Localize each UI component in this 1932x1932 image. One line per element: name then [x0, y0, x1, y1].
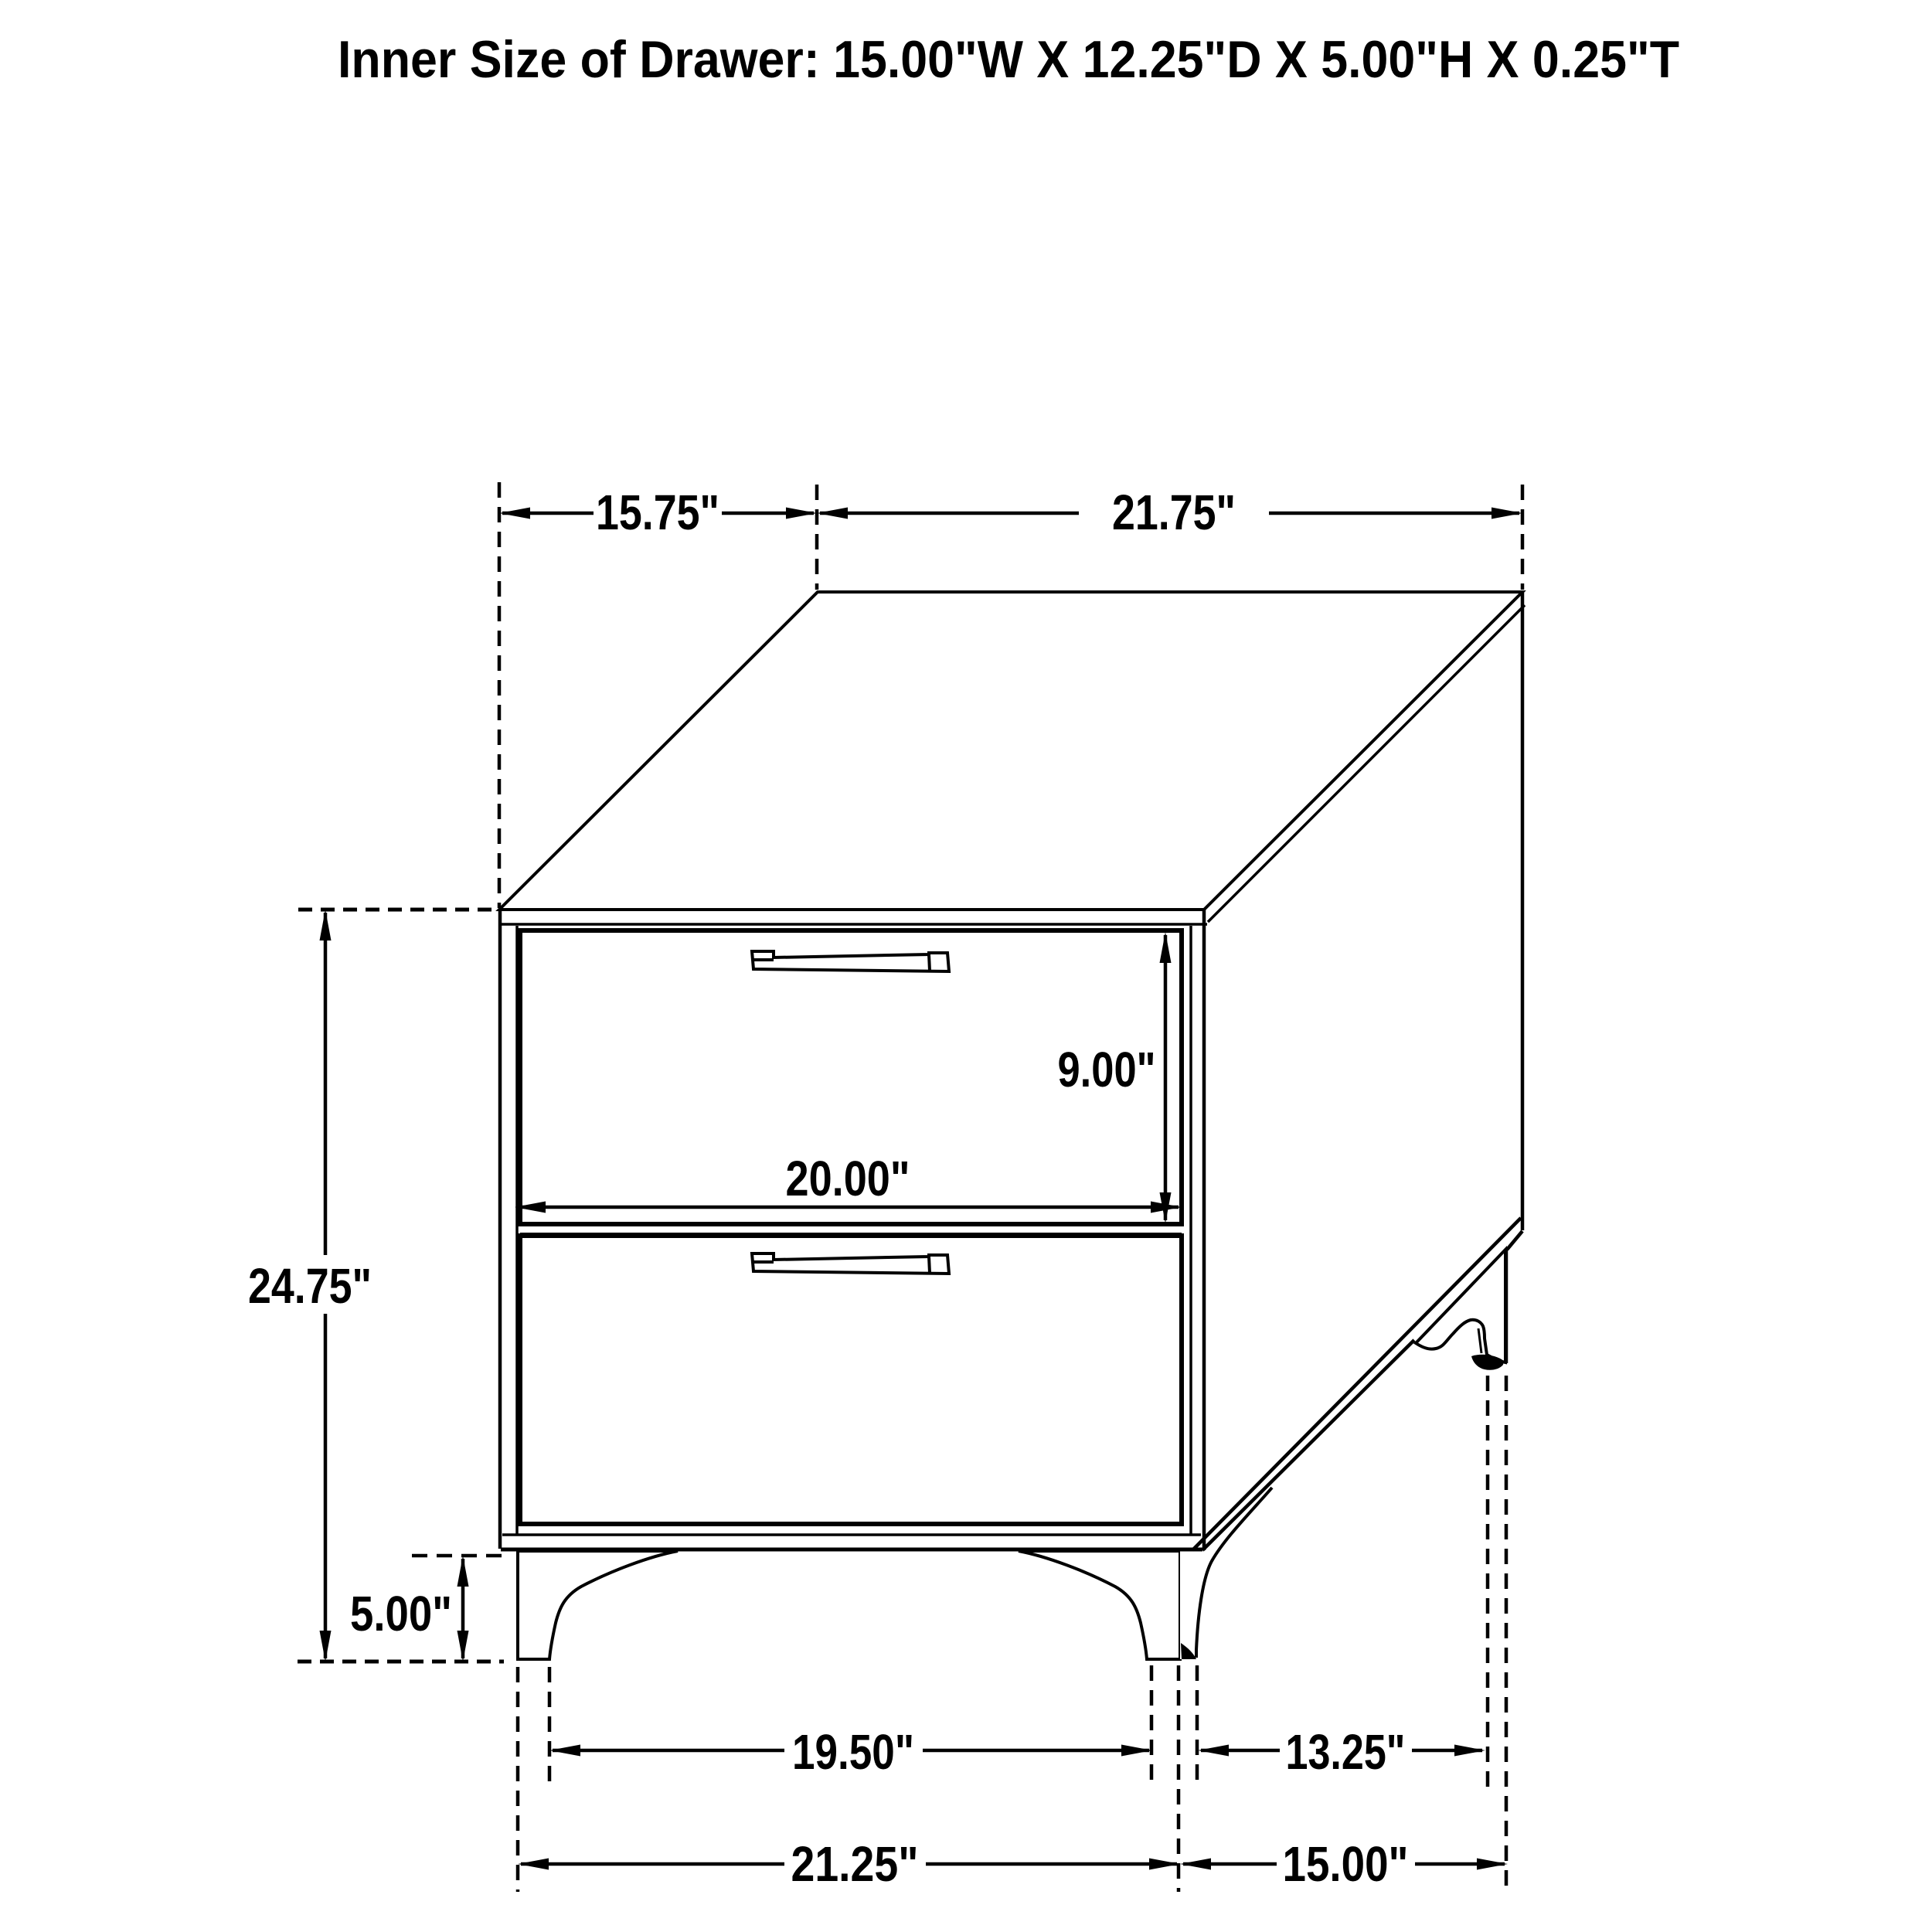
svg-text:21.75": 21.75" — [1112, 485, 1236, 540]
svg-text:21.25": 21.25" — [791, 1836, 919, 1892]
svg-text:Inner Size of Drawer: 15.00"W: Inner Size of Drawer: 15.00"W X 12.25"D … — [338, 30, 1679, 89]
svg-text:13.25": 13.25" — [1286, 1724, 1406, 1780]
svg-text:19.50": 19.50" — [792, 1724, 914, 1780]
svg-text:24.75": 24.75" — [248, 1258, 372, 1314]
svg-text:15.75": 15.75" — [596, 485, 719, 540]
svg-text:5.00": 5.00" — [350, 1586, 452, 1641]
svg-text:9.00": 9.00" — [1058, 1042, 1156, 1097]
svg-text:15.00": 15.00" — [1283, 1836, 1409, 1892]
svg-text:20.00": 20.00" — [786, 1151, 910, 1206]
